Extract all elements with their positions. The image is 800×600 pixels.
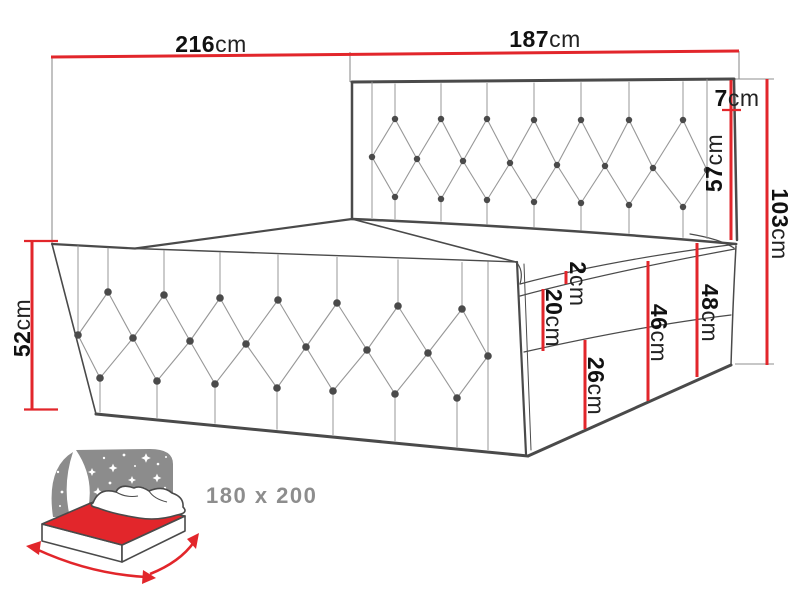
tuft-line xyxy=(367,306,398,350)
dim-label-52: 52cm xyxy=(9,299,35,357)
tuft-line xyxy=(108,292,133,338)
tuft-button xyxy=(392,116,398,122)
tuft-line xyxy=(487,119,510,163)
dim-label-2: 2cm xyxy=(565,262,591,307)
side-panel-left-edge xyxy=(52,244,96,414)
tuft-button xyxy=(363,346,371,354)
tuft-line xyxy=(277,347,306,388)
dim-label-216: 216cm xyxy=(175,31,247,57)
size-icon xyxy=(26,449,199,584)
side-panel-top-seam xyxy=(135,249,517,263)
tuft-button xyxy=(424,349,432,357)
star-dot xyxy=(157,463,160,466)
tuft-line xyxy=(306,347,333,391)
tuft-button xyxy=(242,340,250,348)
tuft-line xyxy=(215,344,246,384)
tuft-button xyxy=(531,199,537,205)
starry-crescent-shape xyxy=(52,452,73,517)
tuft-line xyxy=(398,306,428,353)
tuft-line xyxy=(457,356,488,398)
dim-label-103: 103cm xyxy=(767,188,793,260)
tuft-line xyxy=(372,119,395,157)
dim-label-48: 48cm xyxy=(697,284,723,342)
tuft-button xyxy=(650,165,656,171)
star-dot xyxy=(79,459,82,462)
tuft-button xyxy=(273,384,281,392)
tuft-button xyxy=(680,117,686,123)
dim-label-26: 26cm xyxy=(583,357,609,415)
tuft-button xyxy=(153,377,161,385)
tuft-button xyxy=(578,200,584,206)
tuft-button xyxy=(531,117,537,123)
tuft-line xyxy=(278,300,306,347)
dim-line-top xyxy=(51,51,739,57)
tuft-line xyxy=(510,120,534,163)
tuft-button xyxy=(453,394,461,402)
star-sparkle xyxy=(81,495,88,502)
star-dot xyxy=(103,457,105,459)
tuft-line xyxy=(463,119,487,161)
dim-label-57: 57cm xyxy=(701,134,727,192)
side-panel-bottom-edge xyxy=(96,414,528,456)
tuft-line xyxy=(157,341,190,381)
tuft-line xyxy=(462,309,488,356)
back-right-corner-edge xyxy=(731,246,736,365)
tuft-line xyxy=(441,161,463,199)
tuft-button xyxy=(216,294,224,302)
icon-arrow-width xyxy=(150,542,194,574)
headboard-tufting xyxy=(369,79,710,239)
tuft-line xyxy=(190,298,220,341)
tuft-line xyxy=(395,353,428,394)
tuft-line xyxy=(629,168,653,205)
right-bottom-edge xyxy=(528,365,731,456)
mattress-back-edge xyxy=(352,219,736,244)
tuft-button xyxy=(626,117,632,123)
star-dot xyxy=(87,485,89,487)
tuft-button xyxy=(438,116,444,122)
tuft-button xyxy=(438,196,444,202)
dim-label-46: 46cm xyxy=(646,304,672,362)
tuft-button xyxy=(96,374,104,382)
tuft-line xyxy=(190,341,215,384)
tuft-line xyxy=(534,120,557,165)
tuft-button xyxy=(484,116,490,122)
star-dot xyxy=(81,477,83,479)
tuft-button xyxy=(460,158,466,164)
tuft-button xyxy=(104,288,112,296)
tuft-line xyxy=(164,295,190,341)
tuft-line xyxy=(395,159,417,197)
bed-dimension-diagram: 216cm 187cm 7cm 57cm 103cm 2cm 20cm 26cm… xyxy=(0,0,800,600)
dim-label-7: 7cm xyxy=(715,85,760,111)
tuft-line xyxy=(333,350,367,391)
tuft-line xyxy=(581,166,605,203)
tuft-line xyxy=(246,344,277,388)
tuft-button xyxy=(186,337,194,345)
tuft-button xyxy=(392,194,398,200)
tuft-line xyxy=(220,298,246,344)
tuft-button xyxy=(484,352,492,360)
star-dot xyxy=(59,505,61,507)
tuft-line xyxy=(337,303,367,350)
tuft-line xyxy=(100,338,133,378)
tuft-button xyxy=(329,387,337,395)
tuft-line xyxy=(653,168,683,207)
tuft-line xyxy=(629,120,653,168)
dim-label-20: 20cm xyxy=(541,289,567,347)
tuft-line xyxy=(246,300,278,344)
star-dot xyxy=(165,456,167,458)
tuft-line xyxy=(605,166,629,205)
tuft-button xyxy=(74,331,82,339)
platform-back-edge xyxy=(52,219,352,249)
tuft-button xyxy=(129,334,137,342)
star-dot xyxy=(134,465,136,467)
tuft-button xyxy=(302,343,310,351)
tuft-button xyxy=(507,160,513,166)
star-dot xyxy=(123,454,126,457)
star-dot xyxy=(109,482,112,485)
tuft-line xyxy=(557,165,581,203)
tuft-line xyxy=(487,163,510,200)
tuft-button xyxy=(484,197,490,203)
tuft-line xyxy=(534,165,557,202)
tuft-line xyxy=(306,303,337,347)
size-label: 180 x 200 xyxy=(206,483,317,508)
tuft-line xyxy=(581,120,605,166)
tuft-line xyxy=(133,295,164,338)
diagram-canvas: 216cm 187cm 7cm 57cm 103cm 2cm 20cm 26cm… xyxy=(0,0,800,600)
tuft-line xyxy=(605,120,629,166)
tuft-line xyxy=(428,353,457,398)
tuft-button xyxy=(458,305,466,313)
tuft-button xyxy=(602,163,608,169)
tuft-line xyxy=(441,119,463,161)
tuft-line xyxy=(557,120,581,165)
tuft-line xyxy=(78,292,108,335)
tuft-line xyxy=(367,350,395,394)
tuft-button xyxy=(391,390,399,398)
tuft-button xyxy=(554,162,560,168)
topper-edge-line xyxy=(520,244,737,284)
tuft-line xyxy=(395,119,417,159)
tuft-line xyxy=(417,159,441,199)
icon-arrow-length-head-left xyxy=(26,541,41,555)
star-dot xyxy=(61,491,64,494)
tuft-button xyxy=(626,202,632,208)
tuft-button xyxy=(160,291,168,299)
tuft-line xyxy=(463,161,487,200)
tuft-line xyxy=(133,338,157,381)
tuft-button xyxy=(274,296,282,304)
tuft-button xyxy=(578,117,584,123)
tuft-line xyxy=(653,120,683,168)
tuft-line xyxy=(428,309,462,353)
tuft-button xyxy=(414,156,420,162)
tuft-button xyxy=(333,299,341,307)
tuft-button xyxy=(211,380,219,388)
tuft-button xyxy=(680,204,686,210)
star-dot xyxy=(57,471,59,473)
tuft-line xyxy=(372,157,395,197)
tuft-button xyxy=(369,154,375,160)
dim-label-187: 187cm xyxy=(509,26,581,52)
tuft-line xyxy=(510,163,534,202)
tuft-line xyxy=(417,119,441,159)
headboard-top-edge xyxy=(352,79,734,82)
tuft-button xyxy=(394,302,402,310)
